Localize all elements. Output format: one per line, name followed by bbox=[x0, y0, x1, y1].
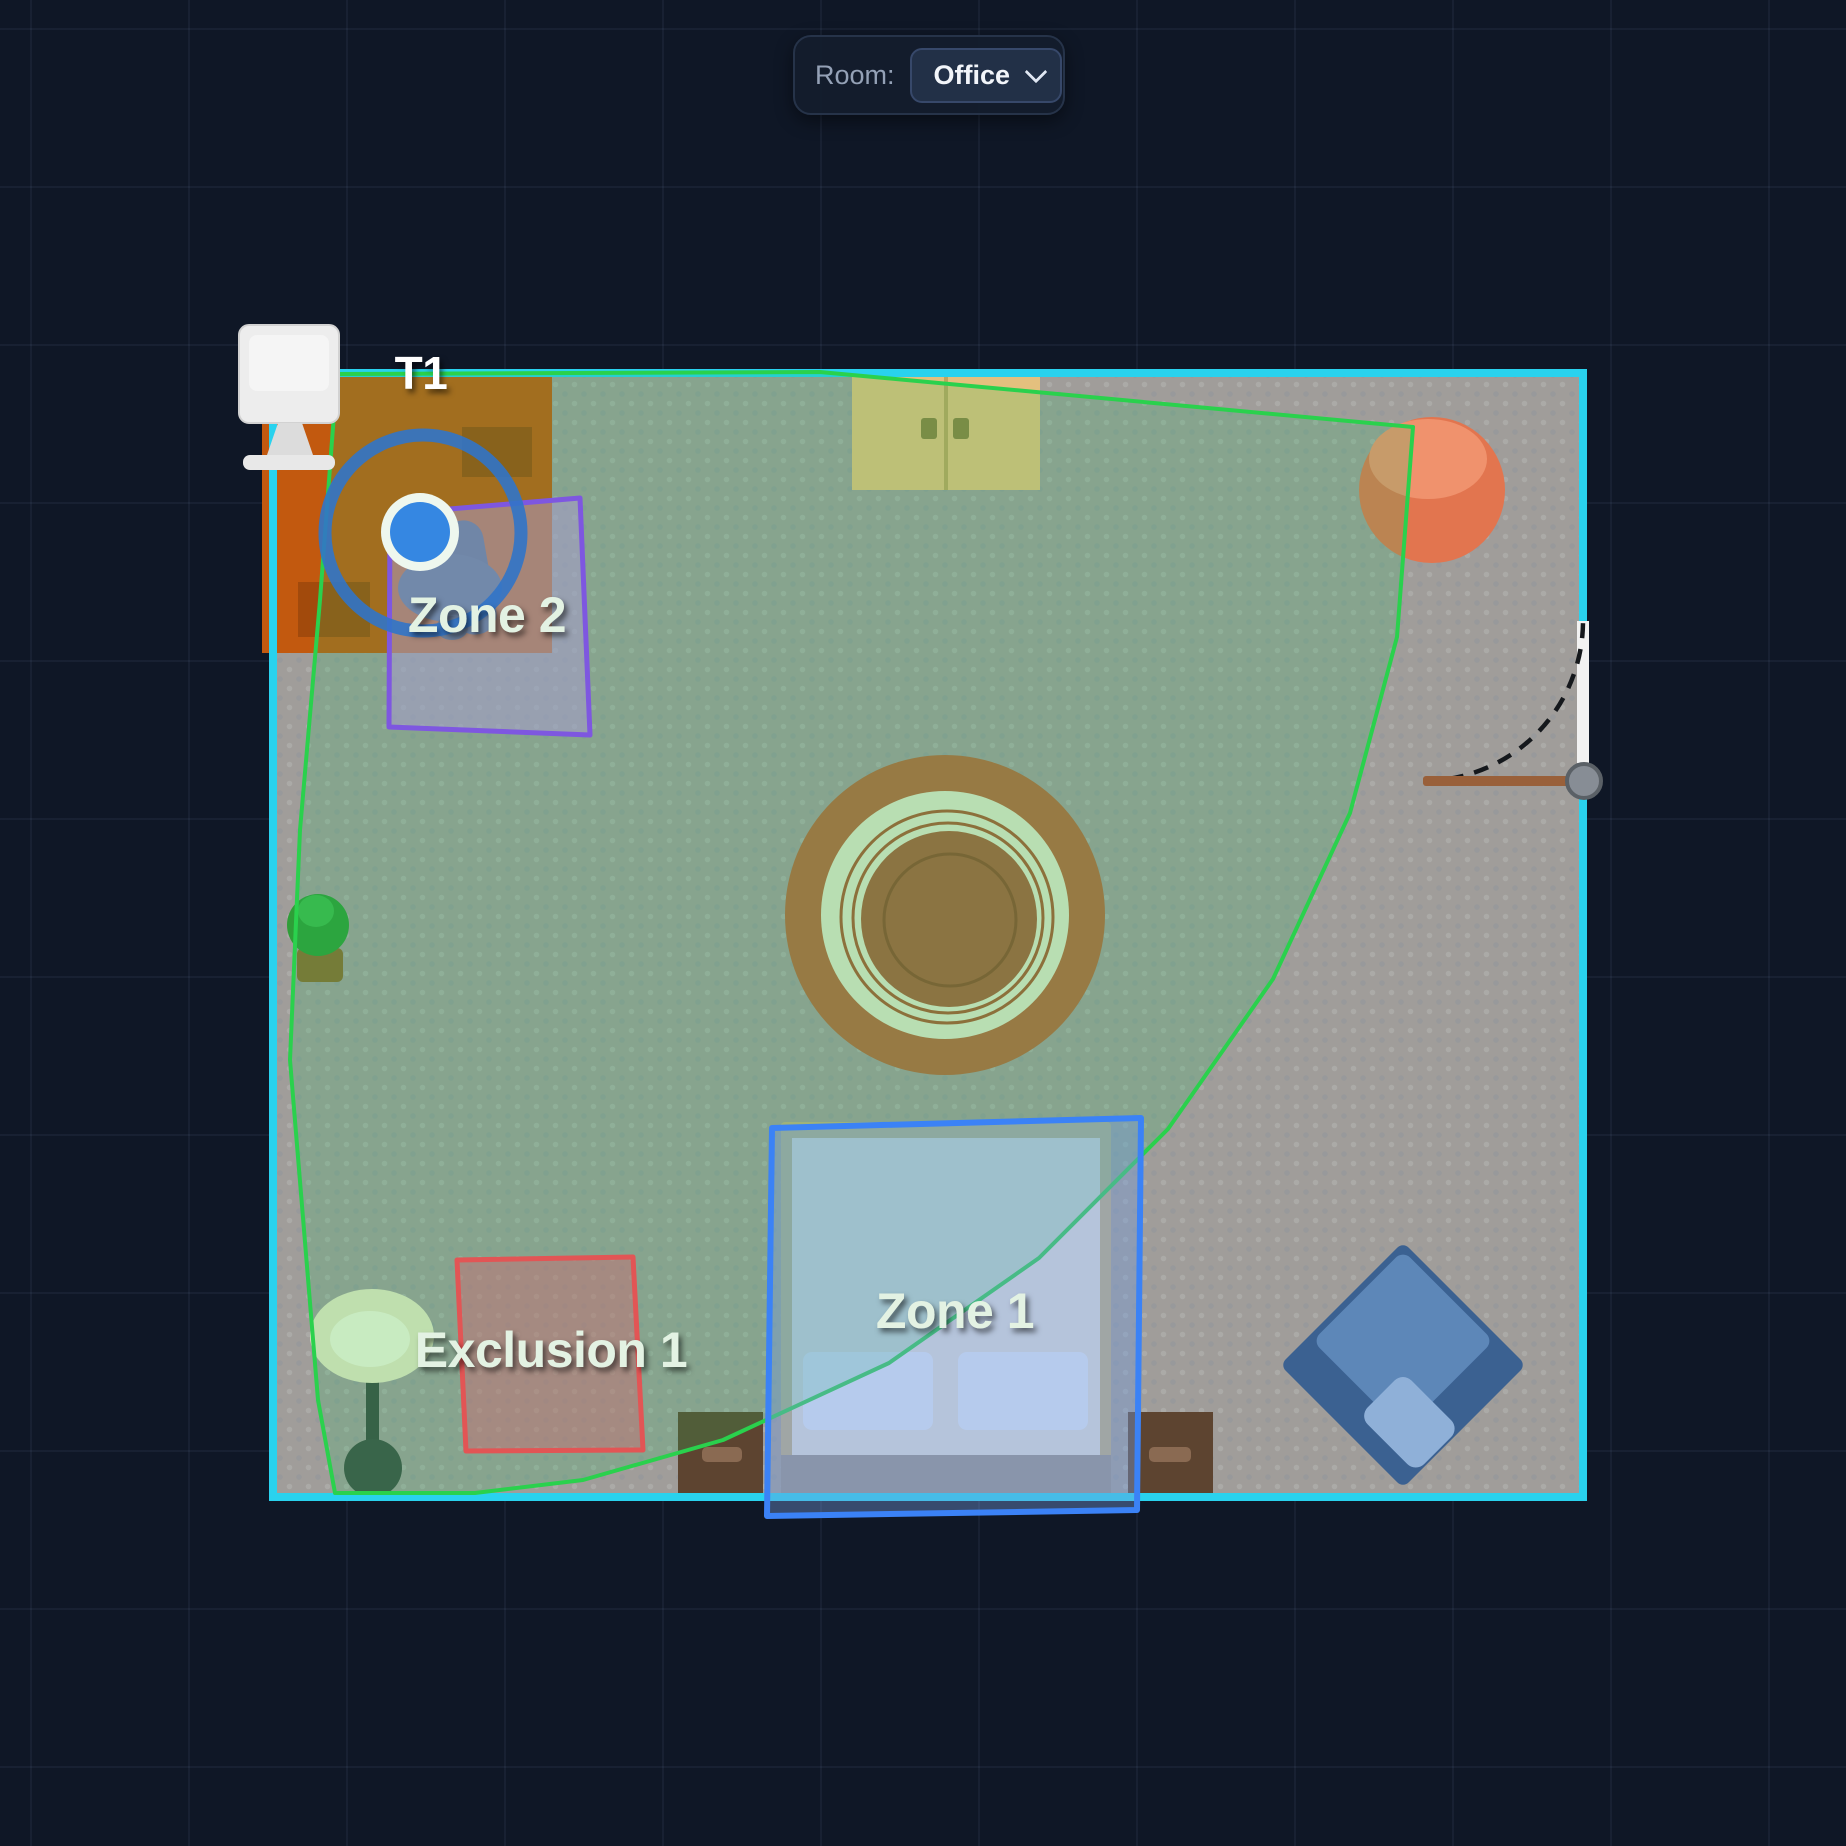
zone-2-label: Zone 2 bbox=[408, 587, 566, 643]
door-leaf bbox=[1423, 776, 1581, 786]
door-hinge bbox=[1567, 764, 1601, 798]
sensor-label: T1 bbox=[395, 347, 448, 399]
exclusion-1-label: Exclusion 1 bbox=[415, 1322, 687, 1378]
editor-canvas: T1 Zone 2 Zone 1 Exclusion 1 Room: Offic… bbox=[0, 0, 1846, 1846]
room-selector-panel: Room: Office bbox=[793, 35, 1065, 115]
room-label: Room: bbox=[815, 60, 895, 91]
room-select[interactable]: Office bbox=[910, 48, 1062, 103]
sensor-dot bbox=[390, 502, 450, 562]
zone-1-label: Zone 1 bbox=[876, 1283, 1034, 1339]
chevron-down-icon bbox=[1024, 60, 1047, 83]
floorplan: T1 Zone 2 Zone 1 Exclusion 1 bbox=[0, 0, 1846, 1846]
room-select-value: Office bbox=[934, 60, 1011, 91]
